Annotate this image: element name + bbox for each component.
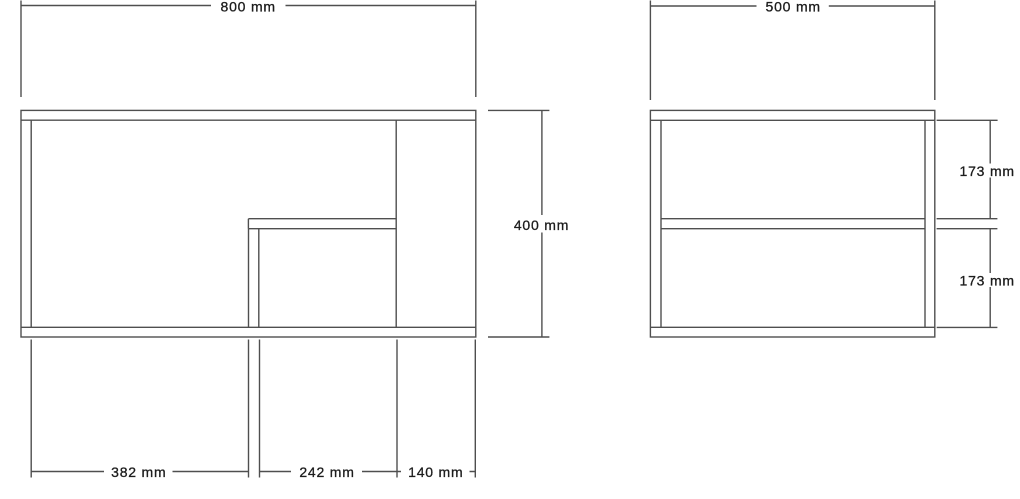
svg-text:400 mm: 400 mm xyxy=(514,217,569,233)
svg-text:800 mm: 800 mm xyxy=(221,0,276,14)
svg-text:173 mm: 173 mm xyxy=(960,163,1015,179)
svg-text:382 mm: 382 mm xyxy=(111,464,166,480)
svg-text:173 mm: 173 mm xyxy=(960,273,1015,289)
svg-text:140 mm: 140 mm xyxy=(408,464,463,480)
svg-text:242 mm: 242 mm xyxy=(299,464,354,480)
svg-text:500 mm: 500 mm xyxy=(766,0,821,14)
